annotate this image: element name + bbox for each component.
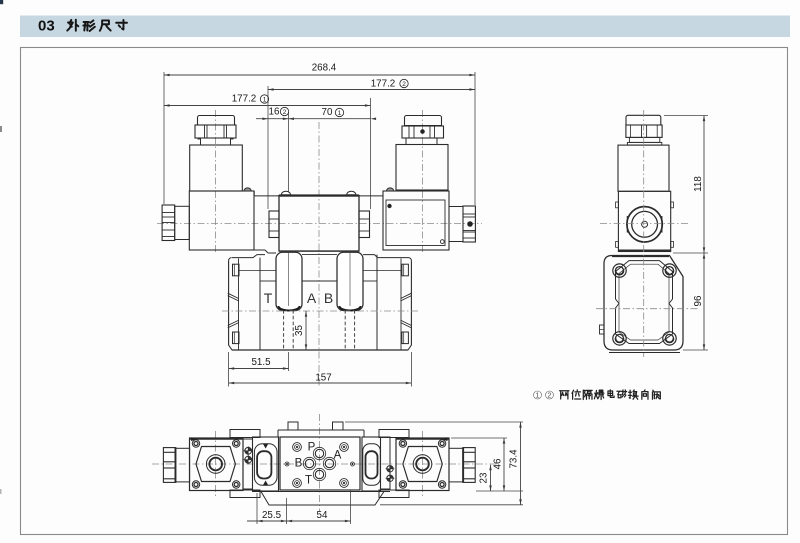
- svg-text:2: 2: [402, 81, 406, 88]
- svg-text:157: 157: [315, 373, 331, 384]
- svg-text:70: 70: [322, 107, 333, 118]
- svg-text:2: 2: [283, 109, 287, 116]
- svg-text:51.5: 51.5: [251, 357, 271, 368]
- svg-text:16: 16: [269, 107, 280, 118]
- svg-text:35: 35: [294, 325, 305, 336]
- svg-text:2: 2: [547, 391, 551, 400]
- svg-text:B: B: [324, 290, 333, 306]
- svg-text:23: 23: [479, 472, 490, 483]
- svg-text:B: B: [295, 458, 303, 470]
- svg-text:177.2: 177.2: [371, 79, 396, 90]
- svg-text:54: 54: [317, 510, 328, 521]
- svg-text:73.4: 73.4: [509, 449, 520, 469]
- svg-text:A: A: [307, 290, 317, 306]
- svg-text:96: 96: [693, 295, 704, 306]
- svg-text:P: P: [308, 442, 316, 454]
- svg-text:1: 1: [535, 391, 539, 400]
- svg-text:177.2: 177.2: [232, 94, 257, 105]
- svg-text:25.5: 25.5: [262, 510, 282, 521]
- svg-text:1: 1: [263, 96, 267, 103]
- svg-text:46: 46: [493, 458, 504, 469]
- svg-text:03: 03: [38, 18, 55, 35]
- svg-text:1: 1: [338, 110, 342, 117]
- svg-text:118: 118: [693, 176, 704, 192]
- svg-text:268.4: 268.4: [312, 63, 337, 74]
- svg-text:T: T: [305, 475, 312, 487]
- svg-text:A: A: [334, 450, 342, 462]
- svg-text:T: T: [264, 290, 273, 306]
